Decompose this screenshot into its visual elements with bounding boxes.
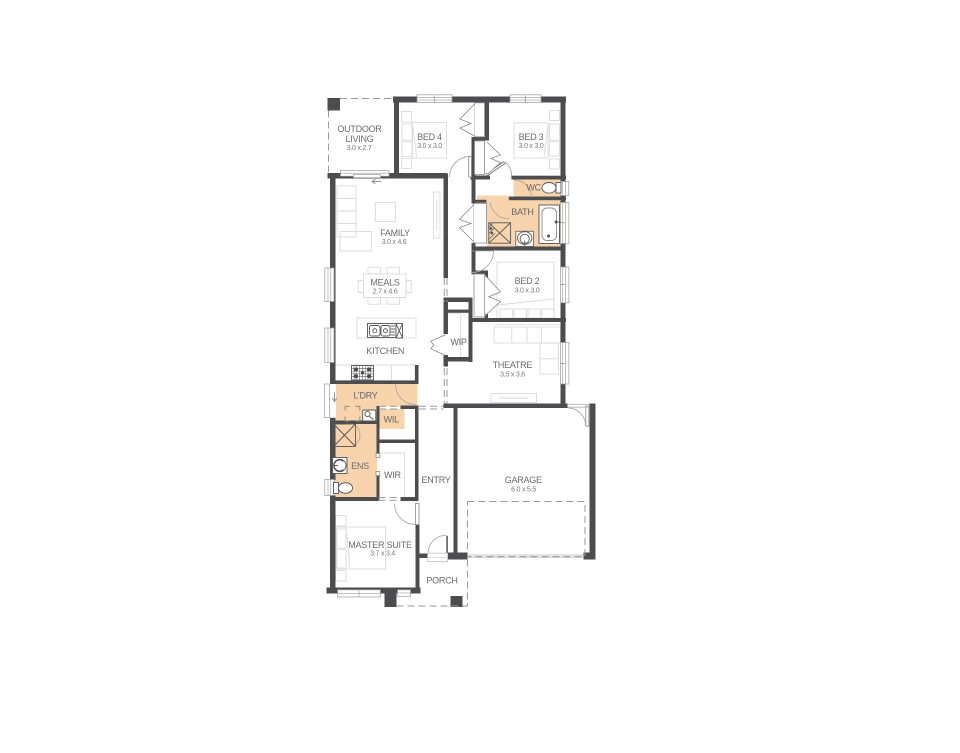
svg-text:L’DRY: L’DRY [353,391,377,401]
svg-text:THEATRE: THEATRE [493,360,533,370]
svg-text:3.7 x 3.4: 3.7 x 3.4 [370,549,395,558]
svg-text:WIP: WIP [450,337,466,347]
svg-text:PORCH: PORCH [426,576,457,586]
svg-text:WC: WC [526,183,541,193]
svg-text:3.0 x 4.6: 3.0 x 4.6 [382,237,407,246]
svg-text:6.0 x 5.5: 6.0 x 5.5 [511,485,536,494]
svg-text:3.5 x 3.6: 3.5 x 3.6 [500,370,525,379]
svg-text:OUTDOOR: OUTDOOR [337,124,382,134]
svg-text:3.0 x 3.0: 3.0 x 3.0 [417,141,442,150]
svg-text:2.7 x 4.6: 2.7 x 4.6 [373,287,398,296]
svg-text:3.0 x 3.0: 3.0 x 3.0 [515,286,540,295]
svg-text:KITCHEN: KITCHEN [366,346,404,356]
svg-text:BATH: BATH [511,207,533,217]
svg-text:3.0 x 2.7: 3.0 x 2.7 [347,143,372,152]
svg-text:BED 2: BED 2 [515,276,540,286]
svg-text:ENTRY: ENTRY [421,475,450,485]
svg-text:3.0 x 3.0: 3.0 x 3.0 [519,141,544,150]
svg-text:GARAGE: GARAGE [505,475,542,485]
svg-text:ENS: ENS [351,461,369,471]
svg-text:WIL: WIL [384,415,399,425]
svg-text:WIR: WIR [384,470,401,480]
